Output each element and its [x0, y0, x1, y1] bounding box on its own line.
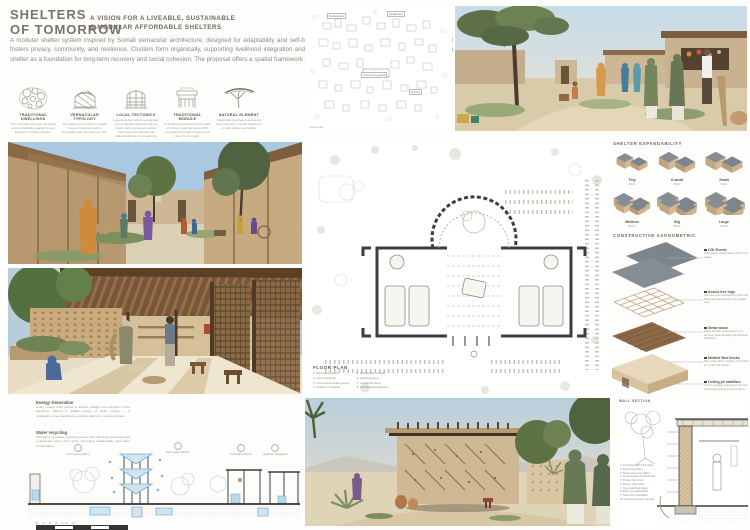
concept-label: VERNACULAR TYPOLOGY [61, 113, 107, 121]
energy-text: Using rooftop solar panels to absorb sun… [36, 405, 130, 418]
subtitle-line1: A VISION FOR A LIVEABLE, SUSTAINABLE [90, 15, 235, 24]
module-iso-icon [701, 189, 747, 215]
floor-plan-title: FLOOR PLAN [313, 365, 389, 370]
wall-section-title: WALL SECTION [619, 399, 651, 403]
acacia-tree-icon [221, 85, 257, 111]
masterplan-caption: masterplan [309, 125, 324, 129]
module-iso-icon [703, 149, 745, 173]
concept-traditional-module: TRADITIONAL MODULE In traditional constr… [164, 85, 210, 138]
concept-local-tectonics: LOCAL TECTONICS Local tectonics reflect … [113, 85, 159, 138]
axon-layer-label: Acacia tree logs Cut tree logs intertwin… [704, 290, 750, 305]
legend-column-1: 1. Bed living space 2. Semi veranda 3. C… [313, 371, 349, 390]
energy-generation-block: Energy Generation Using rooftop solar pa… [36, 400, 130, 418]
concept-caption: Acacia has long been used as an importan… [216, 118, 262, 130]
module-area: 40m² [655, 182, 699, 186]
layer-desc: Fitted slender sticks woven in a layered… [704, 330, 750, 341]
sustainability-section-drawing: Communal cooking Rain water collector Ra… [28, 442, 300, 520]
module-area: 64m² [701, 182, 747, 186]
concept-caption: The aqal is a permanent nomadic house of… [61, 122, 107, 134]
subtitle-line2: & MODULAR AFFORDABLE SHELTERS [90, 24, 235, 33]
rendering-cluster-street [8, 142, 302, 264]
masterplan-label: School [409, 89, 422, 95]
masterplan-panel: Marketplace Healthcare Community space S… [305, 5, 452, 131]
scale-bar-segments [36, 525, 128, 530]
concept-label: NATURAL ELEMENT [216, 113, 262, 117]
rendering-village-street [455, 6, 747, 131]
expandability-title: SHELTER EXPANDABILITY [613, 141, 682, 146]
module-xsmall: X-small 40m² [655, 149, 699, 186]
concept-traditional-dwellings: TRADITIONAL DWELLINGS The courtyard has … [10, 85, 56, 138]
shelter-elevation-image [305, 398, 610, 526]
legend-column-2: 5. Expanded module 6. Farming area 7. Li… [357, 371, 389, 390]
presentation-board: SHELTERS OF TOMORROW A VISION FOR A LIVE… [0, 0, 750, 530]
module-area: 112m² [701, 224, 747, 228]
masterplan-label: Marketplace [327, 13, 346, 19]
legend-item: 4. Outdoor veranda [313, 385, 349, 390]
axon-layer-label: Ceiling jet stabilizer A 5 cm wooden log… [704, 380, 750, 391]
ws-note: 10. Compacted gravel ground [620, 498, 666, 502]
axonometric-title: CONSTRUCTIVE AXONOMETRIC [613, 233, 696, 238]
layer-desc: Cut tree logs intertwined to form the st… [704, 294, 750, 305]
courtyard-image [8, 268, 302, 394]
subtitle: A VISION FOR A LIVEABLE, SUSTAINABLE & M… [90, 15, 235, 32]
village-street-image [455, 6, 747, 131]
module-large: Large 112m² [701, 189, 747, 228]
module-tiny: Tiny 24m² [611, 149, 653, 186]
masterplan-label: Healthcare [387, 11, 405, 17]
masterplan-label: Community space [361, 72, 387, 78]
floor-plan-legend: FLOOR PLAN 1. Bed living space 2. Semi v… [313, 365, 389, 390]
module-area: 80m² [611, 224, 653, 228]
exploded-axon-drawing [608, 240, 703, 396]
module-area: 96m² [655, 224, 699, 228]
axon-layer-label: CGI Sheets Corrugated metal sheets with … [704, 248, 750, 259]
module-medium: Medium 80m² [611, 189, 653, 228]
expandability-grid: Tiny 24m² X-small 40m² Small 64m² Medium… [611, 149, 747, 228]
concept-caption: Local tectonics reflect a pragmatic use … [113, 118, 159, 138]
concept-caption: The courtyard has been physically and sy… [10, 122, 56, 134]
concept-row: TRADITIONAL DWELLINGS The courtyard has … [10, 85, 262, 138]
concept-natural-element: NATURAL ELEMENT Acacia has long been use… [216, 85, 262, 138]
traditional-module-icon [169, 85, 205, 111]
legend-item: 8. Livelihood/expansion [357, 385, 389, 390]
section-drawing: Communal cooking Rain water collector Ra… [28, 442, 300, 520]
module-big: Big 96m² [655, 189, 699, 228]
axon-layer-label: Straw wood Fitted slender sticks woven i… [704, 326, 750, 341]
section-icon-label: Rainwater filtered [231, 452, 252, 456]
section-icon-label: Communal cooking [66, 452, 90, 456]
floor-plan-panel: FLOOR PLAN 1. Bed living space 2. Semi v… [305, 140, 610, 396]
concept-label: LOCAL TECTONICS [113, 113, 159, 117]
axon-layer-label: Molded Mud bricks Site-made 50cm molded … [704, 356, 750, 367]
rendering-courtyard [8, 268, 302, 394]
vernacular-typology-icon [67, 85, 103, 111]
wall-section-notes: 1. CGI sheet with 2.5% slope 2. Acacia l… [620, 464, 666, 502]
masterplan-drawing [305, 5, 452, 131]
layer-desc: Corrugated metal sheets with 2 mm edges [704, 252, 750, 259]
module-iso-icon [612, 189, 652, 215]
module-area: 24m² [611, 182, 653, 186]
module-iso-icon [615, 149, 649, 173]
section-icon-label: Rain water collector [166, 450, 190, 454]
traditional-dwellings-icon [15, 85, 51, 111]
axonometric-diagram: CGI Sheets Corrugated metal sheets with … [608, 240, 748, 396]
module-small: Small 64m² [701, 149, 747, 186]
section-icon-label: Livelihood integration [262, 452, 288, 456]
floor-plan-drawing [305, 140, 610, 396]
wall-section-panel: WALL SECTION [617, 398, 748, 529]
concept-label: TRADITIONAL MODULE [164, 113, 210, 121]
layer-desc: A 5 cm wooden logs tied to the roof fram… [704, 384, 750, 391]
module-iso-icon [655, 189, 699, 215]
local-tectonics-icon [118, 85, 154, 111]
cluster-street-image [8, 142, 302, 264]
layer-desc: Site-made 50cm molded mud bricks on a ha… [704, 360, 750, 367]
rendering-shelter-elevation [305, 398, 610, 526]
concept-caption: In traditional construction the width of… [164, 122, 210, 138]
module-iso-icon [657, 149, 697, 173]
concept-label: TRADITIONAL DWELLINGS [10, 113, 56, 121]
concept-vernacular-typology: VERNACULAR TYPOLOGY The aqal is a perman… [61, 85, 107, 138]
scale-bar: 0 1 2 5 10 m [36, 521, 128, 530]
